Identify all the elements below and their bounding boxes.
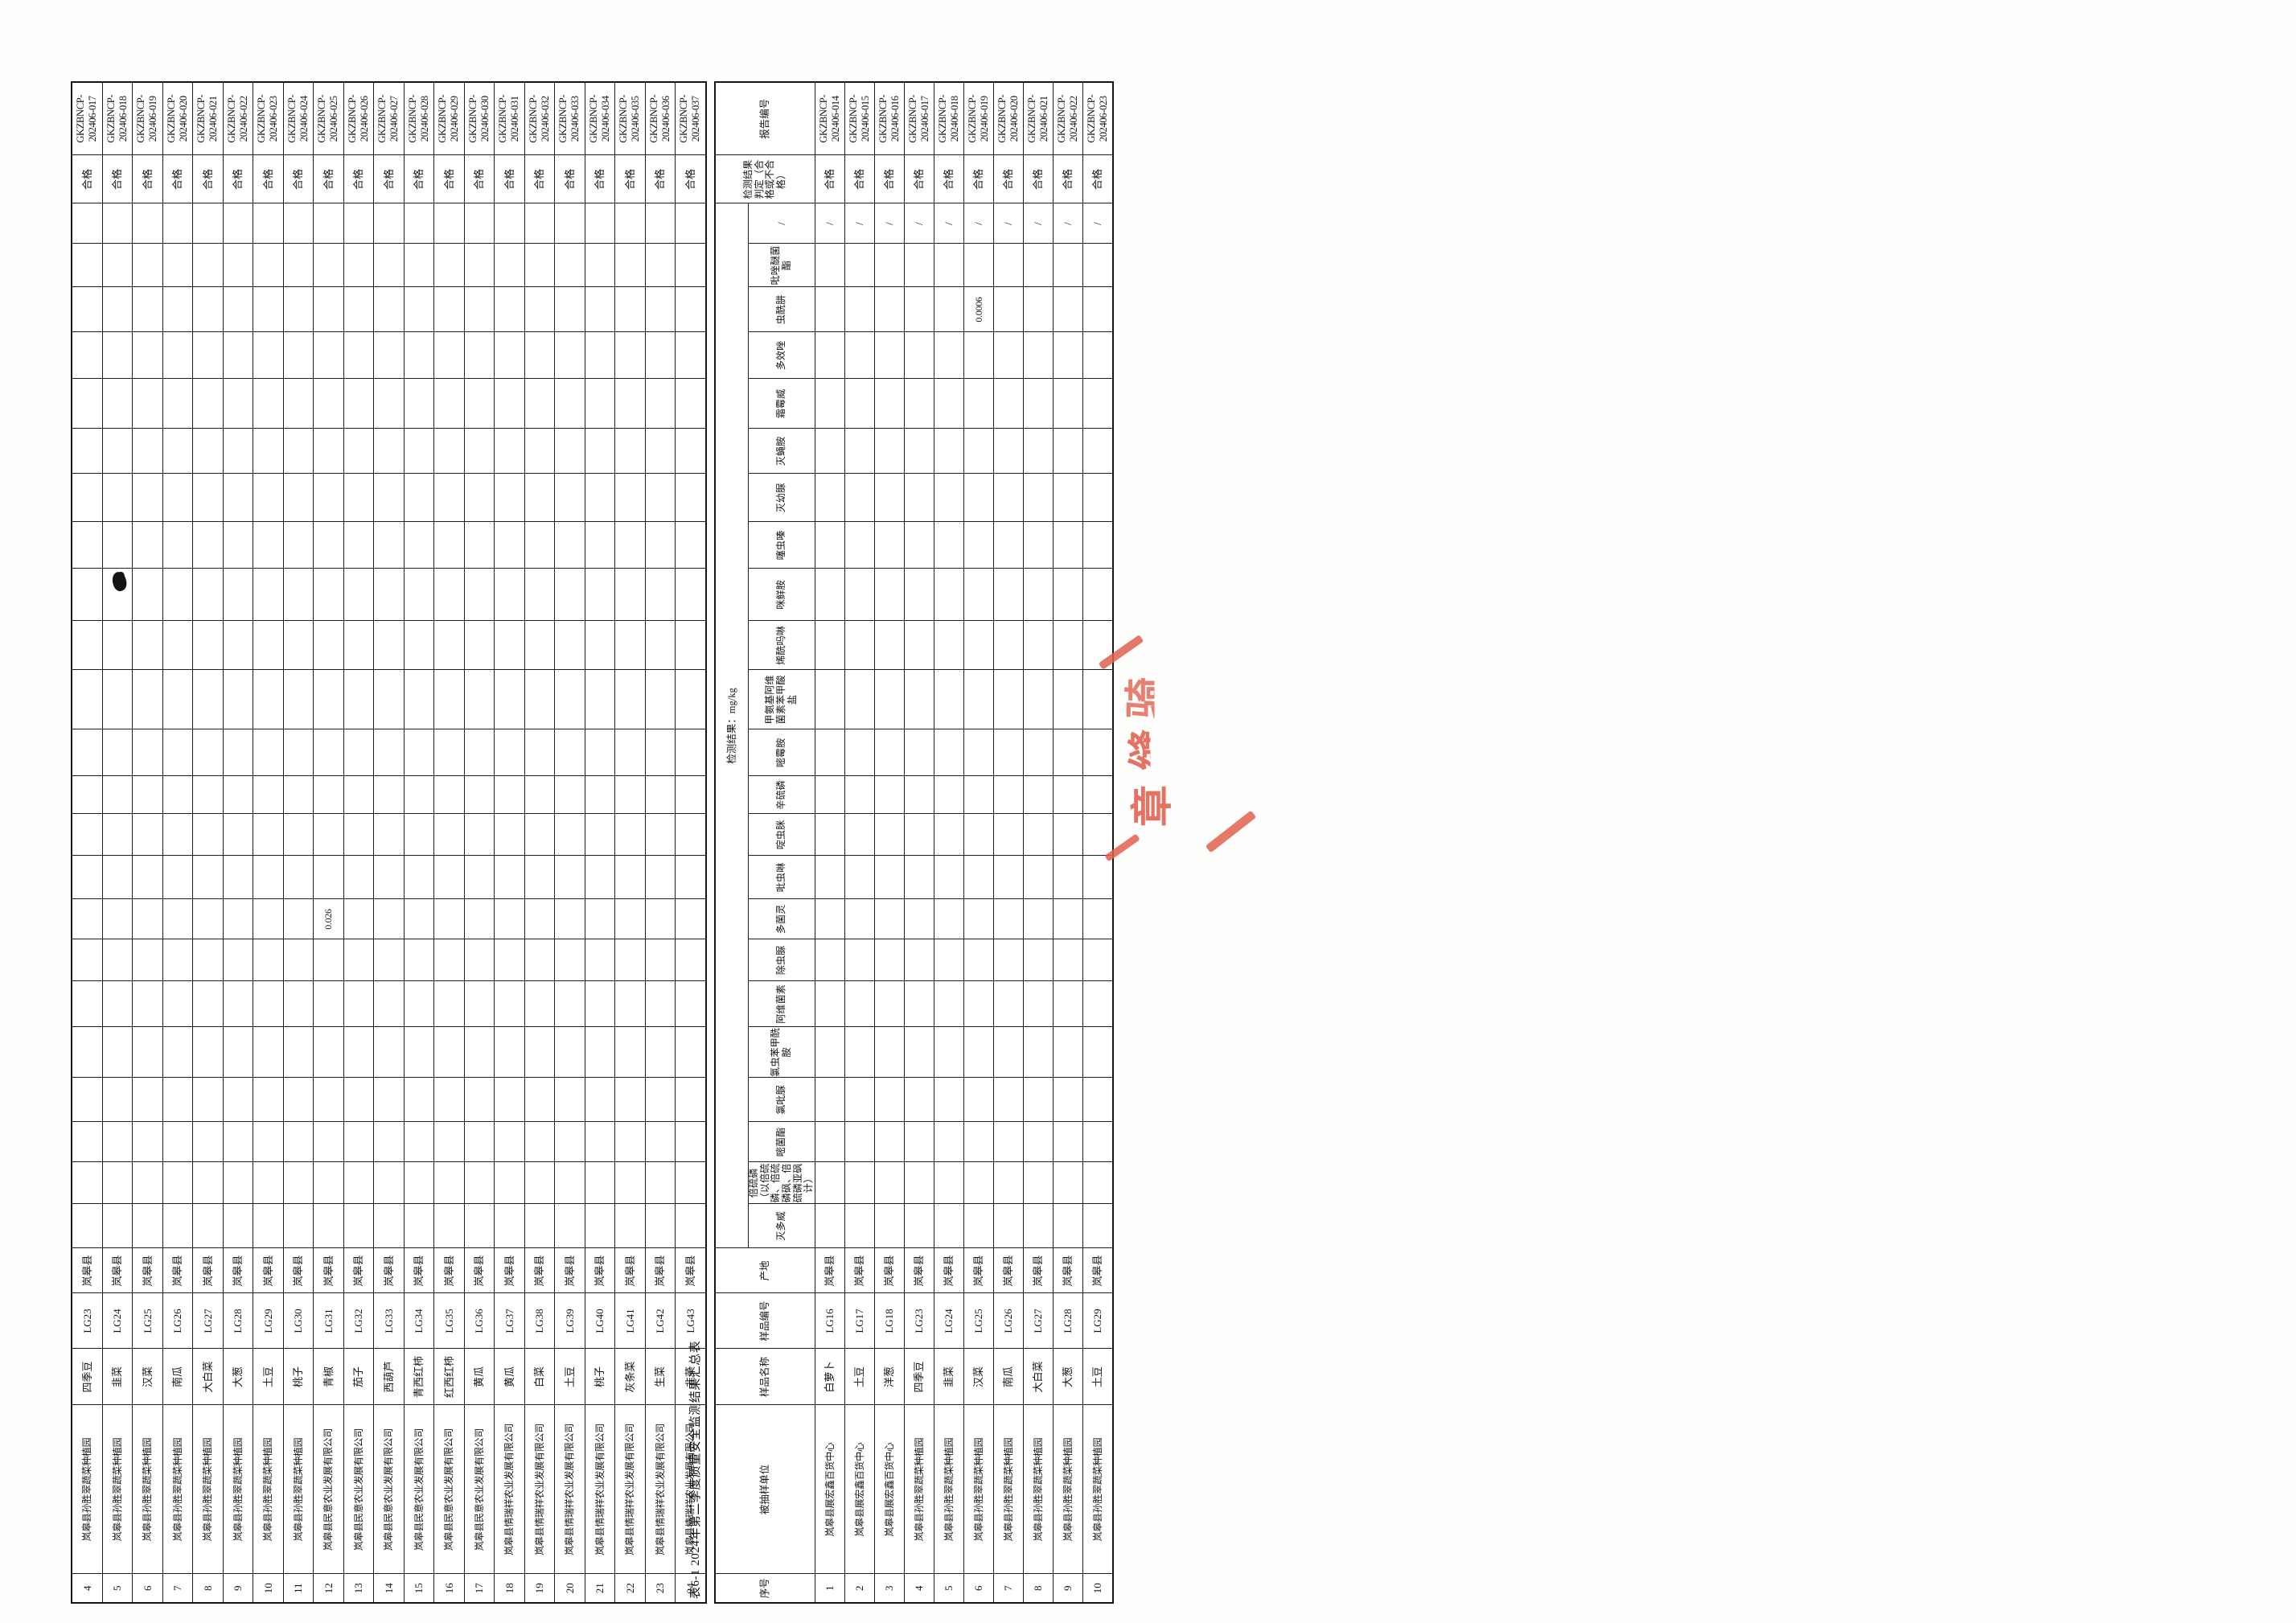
cell-result [615,729,646,776]
cell-result [1023,569,1053,621]
cell-serial: 6 [963,1574,993,1603]
cell-slash [676,203,706,244]
cell-result [815,670,844,729]
cell-sample-code: LG17 [844,1293,874,1349]
cell-result [585,569,615,621]
cell-result [162,244,193,287]
cell-sample-code: LG29 [253,1293,284,1349]
cell-result [585,814,615,856]
cell-slash [72,203,102,244]
cell-result [374,939,405,981]
cell-verdict: 合格 [676,155,706,203]
cell-result [993,474,1023,522]
cell-result [645,814,676,856]
cell-result [133,670,163,729]
cell-serial: 13 [343,1574,374,1603]
cell-result [404,1204,434,1248]
cell-result [193,244,224,287]
cell-result [253,569,284,621]
cell-result [993,244,1023,287]
cell-result [676,429,706,474]
cell-result [844,981,874,1027]
cell-result [645,287,676,332]
cell-result [343,429,374,474]
cell-result [1023,287,1053,332]
cell-result [253,939,284,981]
cell-result [102,1027,133,1078]
cell-result [993,1122,1023,1162]
cell-result [464,621,495,670]
cell-serial: 23 [645,1574,676,1603]
cell-serial: 4 [72,1574,102,1603]
cell-result [495,379,525,429]
cell-result [343,981,374,1027]
pesticide-header: 灭蝇胺 [749,429,815,474]
cell-result [524,244,555,287]
cell-result [464,729,495,776]
cell-result [72,1122,102,1162]
cell-result [1082,776,1113,814]
cell-result [555,621,585,670]
cell-result: 0.026 [314,899,344,939]
cell-result [934,244,963,287]
cell-result [223,621,253,670]
cell-slash [555,203,585,244]
cell-result [615,981,646,1027]
cell-result [815,621,844,670]
cell-result [495,1078,525,1122]
cell-result [934,569,963,621]
cell-result [72,899,102,939]
cell-verdict: 合格 [72,155,102,203]
cell-result [993,939,1023,981]
cell-result [133,287,163,332]
cell-result [464,244,495,287]
cell-result [585,379,615,429]
pesticide-header: 氯虫苯甲酰胺 [749,1027,815,1078]
cell-result [874,939,904,981]
cell-result [1082,332,1113,379]
cell-sample-code: LG38 [524,1293,555,1349]
cell-result [904,621,934,670]
cell-result [874,856,904,899]
cell-result [1023,332,1053,379]
cell-result [72,474,102,522]
cell-result [495,474,525,522]
cell-result [1082,899,1113,939]
cell-result [343,379,374,429]
continuation-table: 4岚皋县孙胜翠蔬菜种植园四季豆LG23岚皋县合格GKZBNCP-202406-0… [71,81,707,1604]
cell-report-no: GKZBNCP-202406-014 [815,82,844,155]
cell-report-no: GKZBNCP-202406-025 [314,82,344,155]
cell-result [815,981,844,1027]
cell-report-no: GKZBNCP-202406-023 [1082,82,1113,155]
cell-origin: 岚皋县 [1023,1248,1053,1293]
cell-result [72,621,102,670]
cell-result [844,332,874,379]
cell-result [162,856,193,899]
cell-sample-code: LG33 [374,1293,405,1349]
cell-result [874,522,904,569]
cell-result [374,1162,405,1204]
cell-result [1082,1162,1113,1204]
cell-result [343,670,374,729]
cell-result [1053,621,1082,670]
cell-report-no: GKZBNCP-202406-016 [874,82,904,155]
cell-report-no: GKZBNCP-202406-033 [555,82,585,155]
cell-result [495,856,525,899]
cell-origin: 岚皋县 [374,1248,405,1293]
cell-result [343,1078,374,1122]
col-header-origin: 产地 [715,1248,815,1293]
cell-result [343,1204,374,1248]
cell-result [963,569,993,621]
cell-verdict: 合格 [253,155,284,203]
cell-result [615,1162,646,1204]
cell-verdict: 合格 [934,155,963,203]
cell-result [844,522,874,569]
cell-result [1023,939,1053,981]
cell-result [404,939,434,981]
cell-result [934,814,963,856]
cell-sample-name: 灰条菜 [615,1349,646,1405]
cell-slash: / [1053,203,1082,244]
cell-result [524,856,555,899]
cell-result [495,332,525,379]
cell-result [904,287,934,332]
cell-result [343,1162,374,1204]
cell-result [1053,287,1082,332]
pesticide-header: 辛硫磷 [749,776,815,814]
cell-result [934,899,963,939]
cell-origin: 岚皋县 [253,1248,284,1293]
cell-slash [404,203,434,244]
cell-result [815,429,844,474]
cell-result [253,621,284,670]
cell-result [904,981,934,1027]
main-results-table: 序号被抽样单位样品名称样品编号产地检测结果：mg/kg检测结果判定（合格或不合格… [714,81,1114,1604]
cell-result [585,939,615,981]
cell-result [904,939,934,981]
cell-serial: 5 [934,1574,963,1603]
cell-result [874,1027,904,1078]
cell-sample-code: LG35 [434,1293,465,1349]
cell-sample-code: LG40 [585,1293,615,1349]
document-page: 4岚皋县孙胜翠蔬菜种植园四季豆LG23岚皋县合格GKZBNCP-202406-0… [0,0,2296,1623]
cell-result [874,981,904,1027]
cell-result [645,1204,676,1248]
cell-origin: 岚皋县 [495,1248,525,1293]
cell-result [102,814,133,856]
cell-result [253,429,284,474]
cell-result [963,379,993,429]
col-header-results-group: 检测结果：mg/kg [715,203,749,1248]
cell-origin: 岚皋县 [223,1248,253,1293]
cell-serial: 18 [495,1574,525,1603]
cell-result [434,981,465,1027]
cell-entity: 岚皋县展宏鑫百货中心 [874,1405,904,1574]
cell-origin: 岚皋县 [72,1248,102,1293]
cell-slash [343,203,374,244]
cell-result [495,1162,525,1204]
cell-result [676,379,706,429]
cell-result [524,1204,555,1248]
cell-result [374,569,405,621]
cell-report-no: GKZBNCP-202406-022 [1053,82,1082,155]
cell-sample-code: LG39 [555,1293,585,1349]
cell-result [524,1078,555,1122]
cell-result [676,939,706,981]
cell-sample-name: 四季豆 [72,1349,102,1405]
cell-entity: 岚皋县孙胜翠蔬菜种植园 [1053,1405,1082,1574]
cell-slash: / [934,203,963,244]
cell-result [676,814,706,856]
cell-result [1053,814,1082,856]
cell-result [495,899,525,939]
cell-result [404,287,434,332]
cell-verdict: 合格 [963,155,993,203]
cell-entity: 岚皋县孙胜翠蔬菜种植园 [133,1405,163,1574]
cell-result [1053,474,1082,522]
cell-result [162,522,193,569]
cell-result [1082,1027,1113,1078]
cell-result [676,670,706,729]
cell-entity: 岚皋县民意农业发展有限公司 [343,1405,374,1574]
cell-sample-code: LG41 [615,1293,646,1349]
cell-result [72,1078,102,1122]
cell-result [1023,1027,1053,1078]
cell-result [404,670,434,729]
cell-report-no: GKZBNCP-202406-021 [193,82,224,155]
cell-result [524,1162,555,1204]
cell-result [314,474,344,522]
cell-report-no: GKZBNCP-202406-018 [102,82,133,155]
cell-serial: 1 [815,1574,844,1603]
cell-result [314,670,344,729]
cell-result [495,569,525,621]
cell-result [102,474,133,522]
cell-result [343,939,374,981]
cell-result [404,814,434,856]
cell-result [815,1078,844,1122]
cell-result [72,670,102,729]
cell-result [72,1162,102,1204]
cell-slash [645,203,676,244]
cell-result [314,981,344,1027]
cell-result [283,332,314,379]
cell-result [162,1027,193,1078]
cell-result [495,670,525,729]
cell-result [193,1027,224,1078]
cell-result [615,244,646,287]
cell-result [193,939,224,981]
cell-verdict: 合格 [314,155,344,203]
pesticide-header: 除虫脲 [749,939,815,981]
cell-slash: / [1023,203,1053,244]
cell-result [434,670,465,729]
cell-slash [434,203,465,244]
cell-result [904,522,934,569]
pesticide-header: 灭幼脲 [749,474,815,522]
cell-serial: 11 [283,1574,314,1603]
cell-result [193,814,224,856]
cell-result [815,729,844,776]
cell-result [133,621,163,670]
cell-entity: 岚皋县孙胜翠蔬菜种植园 [253,1405,284,1574]
cell-result [645,522,676,569]
cell-result [963,729,993,776]
cell-result [133,776,163,814]
cell-result [1082,429,1113,474]
cell-serial: 15 [404,1574,434,1603]
cell-sample-code: LG27 [193,1293,224,1349]
cell-result [555,244,585,287]
cell-result [585,1204,615,1248]
cell-report-no: GKZBNCP-202406-015 [844,82,874,155]
cell-sample-code: LG26 [162,1293,193,1349]
cell-result [223,1204,253,1248]
cell-result [1082,474,1113,522]
cell-result [963,621,993,670]
cell-result [193,776,224,814]
cell-origin: 岚皋县 [193,1248,224,1293]
cell-verdict: 合格 [815,155,844,203]
cell-result [434,1027,465,1078]
cell-result [963,332,993,379]
cell-result [253,474,284,522]
cell-report-no: GKZBNCP-202406-024 [283,82,314,155]
col-header-slash: / [749,203,815,244]
cell-result [993,379,1023,429]
cell-slash [102,203,133,244]
cell-result [102,1078,133,1122]
cell-result [283,670,314,729]
cell-result [585,981,615,1027]
pesticide-header: 甲氨基阿维菌素苯甲酸盐 [749,670,815,729]
cell-result [844,670,874,729]
cell-result [874,379,904,429]
cell-result [72,776,102,814]
cell-result [72,569,102,621]
cell-result [615,569,646,621]
cell-result [1082,981,1113,1027]
cell-result [1023,429,1053,474]
cell-result [162,814,193,856]
cell-result [815,522,844,569]
cell-result [495,522,525,569]
cell-result [934,332,963,379]
cell-result [1053,899,1082,939]
cell-result [133,569,163,621]
cell-sample-code: LG29 [1082,1293,1113,1349]
cell-result [1023,729,1053,776]
cell-result [934,429,963,474]
cell-verdict: 合格 [133,155,163,203]
cell-sample-code: LG28 [1053,1293,1082,1349]
cell-sample-name: 四季豆 [904,1349,934,1405]
cell-result [844,1204,874,1248]
cell-result [102,729,133,776]
cell-result [404,776,434,814]
cell-result [874,244,904,287]
cell-result [102,1204,133,1248]
cell-result [434,621,465,670]
cell-slash: / [1082,203,1113,244]
cell-sample-name: 红西红柿 [434,1349,465,1405]
cell-result [585,429,615,474]
cell-result [434,332,465,379]
cell-result [963,670,993,729]
cell-result [72,981,102,1027]
cell-result [904,1078,934,1122]
cell-result [464,670,495,729]
cell-result [404,981,434,1027]
cell-origin: 岚皋县 [1053,1248,1082,1293]
cell-result [934,729,963,776]
cell-result [963,1122,993,1162]
cell-result [1053,244,1082,287]
cell-entity: 岚皋县孙胜翠蔬菜种植园 [102,1405,133,1574]
cell-sample-name: 土豆 [555,1349,585,1405]
cell-sample-name: 土豆 [1082,1349,1113,1405]
cell-result [72,287,102,332]
cell-result [162,670,193,729]
cell-verdict: 合格 [374,155,405,203]
cell-result [934,522,963,569]
cell-result [1053,522,1082,569]
cell-result [253,670,284,729]
cell-result [615,429,646,474]
cell-result [253,814,284,856]
cell-result [223,939,253,981]
cell-result [1053,856,1082,899]
cell-report-no: GKZBNCP-202406-035 [615,82,646,155]
cell-result [676,474,706,522]
cell-result [615,899,646,939]
cell-report-no: GKZBNCP-202406-028 [404,82,434,155]
cell-result [676,1122,706,1162]
cell-result [464,856,495,899]
cell-verdict: 合格 [904,155,934,203]
cell-result [495,429,525,474]
cell-result [524,776,555,814]
cell-result [283,621,314,670]
cell-entity: 岚皋县情瑞祥农业发展有限公司 [585,1405,615,1574]
cell-result [645,332,676,379]
cell-result [314,332,344,379]
cell-result [1082,1078,1113,1122]
cell-result [585,1027,615,1078]
cell-entity: 岚皋县民意农业发展有限公司 [434,1405,465,1574]
cell-result [72,332,102,379]
cell-result [223,1122,253,1162]
cell-result [464,939,495,981]
cell-result [963,1078,993,1122]
cell-result [102,332,133,379]
cell-origin: 岚皋县 [844,1248,874,1293]
cell-result [963,1162,993,1204]
cell-result [676,729,706,776]
cell-result [72,1027,102,1078]
cell-sample-name: 桃子 [283,1349,314,1405]
pesticide-header: 多效唑 [749,332,815,379]
cell-result [193,569,224,621]
cell-result [645,729,676,776]
cell-result [615,474,646,522]
seal-char-fragment: 缝 [1115,729,1176,770]
cell-result [223,287,253,332]
cell-result [555,939,585,981]
